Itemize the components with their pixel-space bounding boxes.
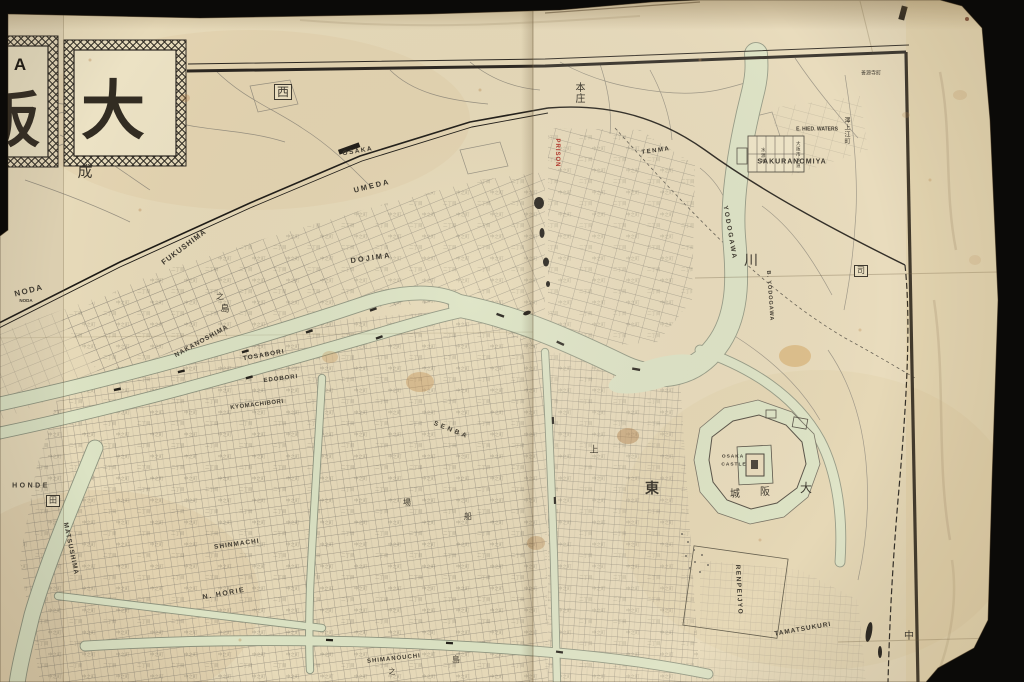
paper-shading [0, 0, 1024, 682]
map-artwork: 二丁目 中之町 [0, 0, 1024, 682]
map-photo: 二丁目 中之町 [0, 0, 1024, 682]
